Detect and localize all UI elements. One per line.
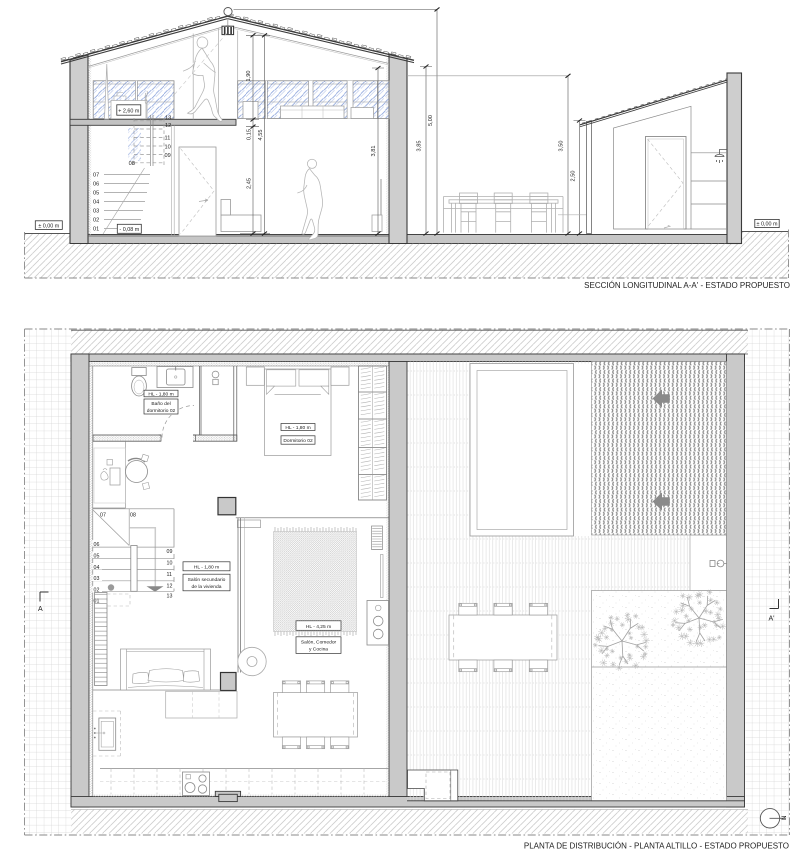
svg-text:HL - 1,80 m: HL - 1,80 m [148,391,173,397]
svg-text:3,85: 3,85 [417,141,423,152]
svg-text:2,50: 2,50 [571,171,577,182]
svg-text:± 0,00 m: ± 0,00 m [38,223,59,229]
svg-text:10: 10 [167,561,173,567]
svg-text:PLANTA DE DISTRIBUCIÓN - PLANT: PLANTA DE DISTRIBUCIÓN - PLANTA ALTILLO … [524,842,789,851]
svg-text:N: N [780,816,787,821]
svg-text:09: 09 [167,549,173,555]
svg-text:08: 08 [129,161,135,167]
svg-text:08: 08 [130,512,136,518]
svg-text:A': A' [769,616,775,623]
svg-text:A: A [38,606,43,613]
svg-text:10: 10 [165,145,171,151]
svg-text:09: 09 [165,153,171,159]
svg-text:03: 03 [94,576,100,582]
svg-text:11: 11 [167,572,173,578]
svg-text:13: 13 [165,115,171,121]
svg-text:HL - 1,80 m: HL - 1,80 m [285,425,310,431]
svg-text:4,55: 4,55 [258,130,264,141]
svg-text:HL - 4,25 m: HL - 4,25 m [306,624,331,630]
svg-text:3,50: 3,50 [559,141,565,152]
svg-text:Dormitorio 02: Dormitorio 02 [283,438,313,444]
svg-text:02: 02 [93,218,99,224]
svg-text:SECCIÓN LONGITUDINAL A-A' - ES: SECCIÓN LONGITUDINAL A-A' - ESTADO PROPU… [584,281,790,290]
svg-text:5,00: 5,00 [428,115,434,126]
svg-text:03: 03 [93,209,99,215]
svg-text:12: 12 [165,123,171,129]
svg-text:05: 05 [94,553,100,559]
svg-text:11: 11 [165,136,171,142]
svg-text:06: 06 [94,542,100,548]
svg-text:07: 07 [100,512,106,518]
svg-text:3,81: 3,81 [371,146,377,157]
svg-text:dormitorio 02: dormitorio 02 [147,408,176,414]
svg-text:de la vivienda: de la vivienda [192,584,222,590]
svg-text:+ 2,60 m: + 2,60 m [118,108,140,114]
svg-text:12: 12 [167,583,173,589]
svg-text:05: 05 [93,191,99,197]
svg-text:13: 13 [167,594,173,600]
svg-text:2,45: 2,45 [247,178,253,189]
svg-text:Baño del: Baño del [151,401,170,407]
svg-text:HL - 1,80 m: HL - 1,80 m [194,565,219,571]
svg-text:06: 06 [93,182,99,188]
svg-text:04: 04 [94,565,100,571]
svg-text:1,90: 1,90 [246,71,252,82]
svg-text:07: 07 [93,173,99,179]
svg-text:Salón, Comedor: Salón, Comedor [301,640,337,646]
svg-text:± 0,00 m: ± 0,00 m [757,222,778,228]
svg-text:y Cocina: y Cocina [309,646,328,652]
svg-text:0,15: 0,15 [247,129,253,140]
svg-text:01: 01 [93,227,99,233]
svg-text:- 0,08 m: - 0,08 m [119,227,139,233]
svg-text:04: 04 [93,200,99,206]
svg-text:Salón secundario: Salón secundario [188,577,226,583]
